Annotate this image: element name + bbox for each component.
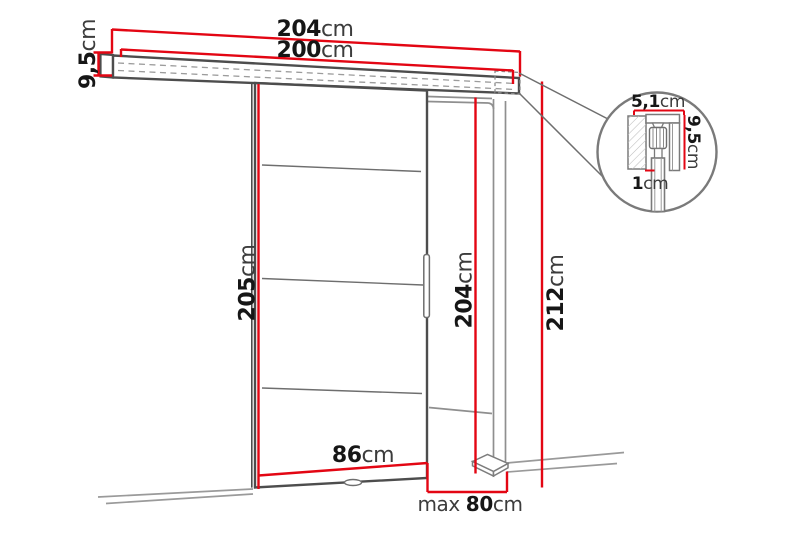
floor-guide	[345, 480, 362, 486]
label-rail-inner-width: 200cm	[277, 38, 354, 63]
label-opening-width: max 80cm	[417, 492, 522, 516]
label-door-height: 205cm	[236, 245, 261, 322]
label-door-width: 86cm	[332, 443, 394, 468]
door-hanger	[655, 149, 663, 159]
opening-top-edge	[428, 97, 492, 99]
label-detail-track-height: 9,5cm	[683, 115, 703, 169]
callout-line-lower	[519, 93, 604, 178]
door-handle	[424, 255, 430, 318]
diagram-page: 204cm 200cm 9,5cm 205cm 204cm 212cm 86cm…	[0, 0, 800, 533]
rail-end-cap	[101, 54, 114, 78]
cover-profile	[670, 123, 680, 171]
opening-far-floor-line	[429, 408, 492, 414]
floor-line-right-lower	[507, 464, 617, 473]
door-panel-face	[255, 83, 427, 488]
label-detail-gap: 1cm	[632, 174, 669, 194]
diagram-canvas: 204cm 200cm 9,5cm 205cm 204cm 212cm 86cm…	[0, 0, 800, 533]
jamb-foot-block	[473, 455, 509, 477]
opening-top-inner-edge	[428, 102, 489, 104]
label-total-height: 212cm	[544, 255, 569, 332]
label-detail-track-width: 5,1cm	[631, 92, 685, 112]
wall-section-hatch	[628, 116, 646, 169]
door-panel	[252, 83, 430, 488]
floor-line-right-upper	[507, 453, 624, 464]
label-rail-height: 9,5cm	[76, 19, 101, 89]
callout-line-upper	[519, 73, 607, 119]
label-opening-height: 204cm	[453, 252, 478, 329]
track-top-plate	[646, 115, 680, 124]
